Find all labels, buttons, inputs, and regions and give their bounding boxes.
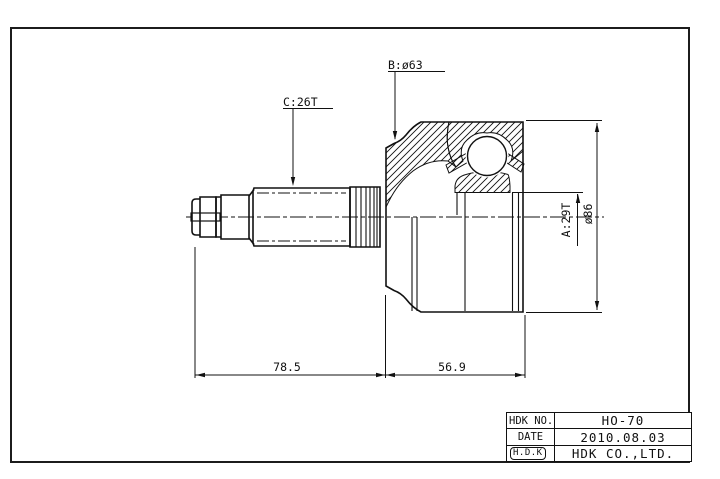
hdk-logo: H.D.K xyxy=(510,447,546,460)
cv-joint-technical-drawing: B:ø63 C:26T A:29T ø86 78.5 56.9 xyxy=(0,0,720,479)
c-label-leader xyxy=(283,109,333,185)
dim-label-c: C:26T xyxy=(283,95,318,109)
title-block-row-date: DATE 2010.08.03 xyxy=(507,428,691,444)
bearing-ball xyxy=(468,137,507,176)
dim-label-b: B:ø63 xyxy=(388,58,423,72)
title-block-label-hdk-no: HDK NO. xyxy=(507,415,554,427)
title-block-value-company: HDK CO.,LTD. xyxy=(554,446,691,461)
title-block-row-number: HDK NO. HO-70 xyxy=(507,413,691,428)
dim-label-length-right: 56.9 xyxy=(438,360,466,374)
title-block-label-date: DATE xyxy=(507,431,554,443)
drawing-sheet: B:ø63 C:26T A:29T ø86 78.5 56.9 HDK NO. … xyxy=(0,0,720,479)
dim-label-length-left: 78.5 xyxy=(273,360,301,374)
title-block-row-company: H.D.K HDK CO.,LTD. xyxy=(507,445,691,461)
dim-label-a: A:29T xyxy=(559,203,573,238)
title-block: HDK NO. HO-70 DATE 2010.08.03 H.D.K HDK … xyxy=(506,412,692,462)
dim-label-dia86: ø86 xyxy=(581,204,595,225)
title-block-logo-cell: H.D.K xyxy=(507,447,554,460)
title-block-value-date: 2010.08.03 xyxy=(554,429,691,444)
title-block-value-drawing-number: HO-70 xyxy=(554,413,691,428)
